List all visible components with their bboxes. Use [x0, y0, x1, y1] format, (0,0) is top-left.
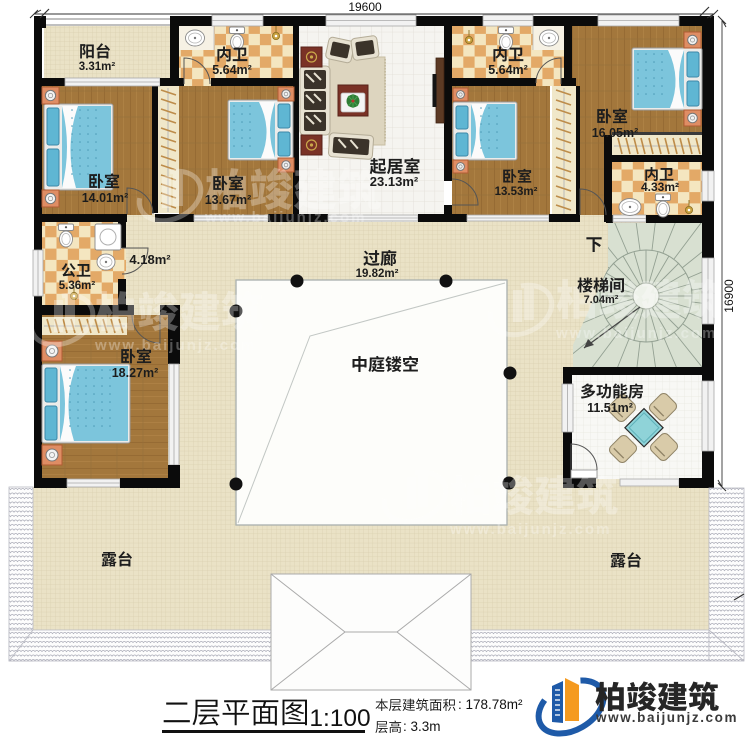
svg-text:23.13m²: 23.13m²: [370, 174, 419, 189]
svg-text:5.64m²: 5.64m²: [488, 63, 528, 77]
svg-text:7.04m²: 7.04m²: [584, 294, 619, 306]
svg-text:www.baijunjz.com: www.baijunjz.com: [94, 337, 256, 354]
svg-text:www.baijunjz.com: www.baijunjz.com: [204, 209, 366, 226]
svg-text:19.82m²: 19.82m²: [356, 268, 399, 280]
svg-text:1:100: 1:100: [309, 705, 370, 732]
svg-text:www.baijunjz.com: www.baijunjz.com: [595, 710, 738, 725]
svg-text:5.64m²: 5.64m²: [212, 63, 252, 77]
svg-text:: 178.78m²: : 178.78m²: [458, 697, 523, 712]
svg-text:13.53m²: 13.53m²: [495, 186, 538, 198]
svg-text:3.31m²: 3.31m²: [79, 61, 116, 73]
svg-text:www.baijunjz.com: www.baijunjz.com: [449, 521, 611, 538]
svg-text:4.33m²: 4.33m²: [641, 180, 679, 194]
svg-text:5.36m²: 5.36m²: [59, 280, 96, 292]
svg-text:www.baijunjz.com: www.baijunjz.com: [555, 325, 717, 342]
svg-text:19600: 19600: [348, 0, 382, 14]
svg-text:14.01m²: 14.01m²: [82, 191, 129, 205]
svg-text:11.51m²: 11.51m²: [587, 401, 633, 415]
svg-text:: 3.3m: : 3.3m: [403, 719, 441, 734]
svg-text:4.18m²: 4.18m²: [129, 252, 171, 267]
svg-text:13.67m²: 13.67m²: [205, 193, 252, 207]
svg-text:16900: 16900: [722, 279, 736, 313]
svg-text:18.27m²: 18.27m²: [112, 366, 159, 380]
svg-text:16.05m²: 16.05m²: [592, 126, 639, 140]
